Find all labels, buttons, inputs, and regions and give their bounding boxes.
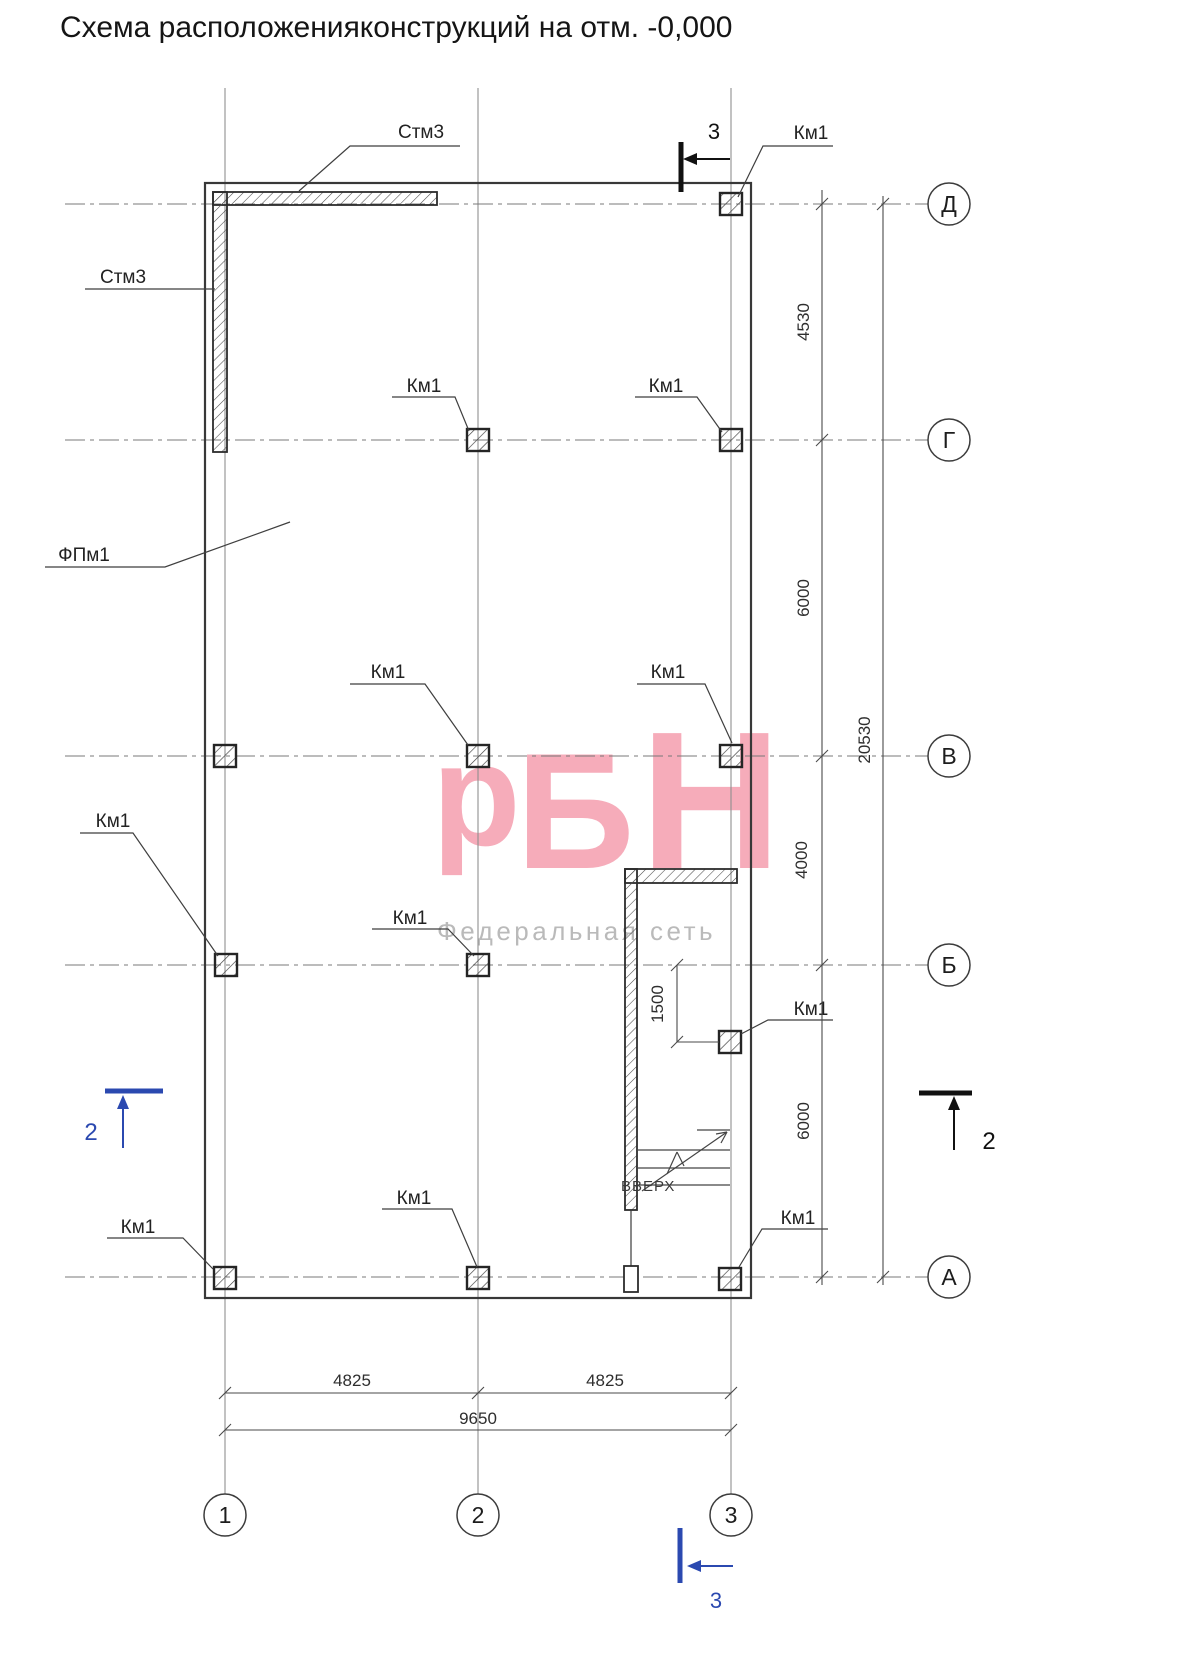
tag-km1-A3: Км1	[781, 1208, 816, 1229]
column-km1-V1	[214, 745, 236, 767]
section-marker-3-bottom: 3	[680, 1528, 733, 1613]
leader-km1-A2	[382, 1209, 477, 1267]
watermark-logo-letter: Б	[516, 719, 635, 903]
column-km1-B1	[215, 954, 237, 976]
axis-label-2: 2	[472, 1502, 485, 1528]
watermark-logo-letter: р	[432, 714, 521, 876]
tag-km1-B2: Км1	[393, 908, 428, 929]
tag-km1-B1: Км1	[96, 811, 131, 832]
column-km1-A1	[214, 1267, 236, 1289]
column-km1-stair	[719, 1031, 741, 1053]
axis-label-3: 3	[725, 1502, 738, 1528]
leader-km1-D3	[738, 146, 833, 197]
section-label-3-top: 3	[708, 119, 720, 144]
column-axis-bubbles: 1 2 3	[204, 1494, 752, 1536]
dim-20530: 20530	[855, 716, 874, 763]
tag-km1-stair: Км1	[794, 999, 829, 1020]
stairwell-wall-top	[625, 869, 737, 883]
section-marker-3-top: 3	[681, 119, 730, 192]
watermark: р Б Н Федеральная сеть	[432, 691, 782, 946]
stair-dimension	[671, 959, 719, 1048]
dim-6000a: 6000	[794, 579, 813, 617]
column-km1-A3	[719, 1268, 741, 1290]
tag-km1-V3: Км1	[651, 662, 686, 683]
stair-up-label: ВВЕРХ	[621, 1178, 675, 1195]
tag-km1-A1: Км1	[121, 1217, 156, 1238]
dim-1500: 1500	[648, 985, 667, 1023]
row-axis-bubbles: Д Г В Б А	[928, 183, 970, 1298]
section-arrow	[948, 1096, 960, 1110]
leader-km1-B1	[80, 833, 218, 956]
dim-4825-right: 4825	[586, 1371, 624, 1390]
section-arrow	[687, 1560, 701, 1572]
axis-label-A: А	[941, 1264, 957, 1290]
axis-label-G: Г	[943, 427, 956, 453]
column-km1-G3	[720, 429, 742, 451]
page-title: Схема расположенияконструкций на отм. -0…	[60, 11, 732, 44]
tag-km1-D3: Км1	[794, 123, 829, 144]
leader-km1-G3	[635, 397, 722, 432]
tag-fpm1: ФПм1	[58, 545, 110, 566]
drawing-sheet: р Б Н Федеральная сеть Схема расположени…	[0, 0, 1200, 1654]
leader-km1-A3	[739, 1229, 828, 1267]
section-label-3-bottom: 3	[710, 1588, 722, 1613]
tag-km1-V2: Км1	[371, 662, 406, 683]
dim-9650: 9650	[459, 1409, 497, 1428]
dim-4530: 4530	[794, 303, 813, 341]
dim-4825-left: 4825	[333, 1371, 371, 1390]
axis-label-V: В	[941, 743, 956, 769]
tag-stm3-left: Стм3	[100, 267, 146, 288]
leader-km1-A1	[107, 1238, 213, 1269]
stairwell-wall-left	[625, 869, 637, 1210]
wall-left-stm3	[213, 192, 227, 452]
dim-6000b: 6000	[794, 1102, 813, 1140]
axis-label-1: 1	[219, 1502, 232, 1528]
leader-km1-stair	[741, 1020, 833, 1034]
section-label-2-right: 2	[982, 1128, 995, 1155]
leader-stm3-top	[299, 146, 460, 191]
column-km1-A2	[467, 1267, 489, 1289]
leader-km1-G2	[392, 397, 469, 431]
wall-top-stm3	[213, 192, 437, 205]
column-km1-V3	[720, 745, 742, 767]
dim-4000: 4000	[792, 841, 811, 879]
section-arrow	[117, 1095, 129, 1109]
axis-label-B: Б	[941, 952, 956, 978]
tag-km1-A2: Км1	[397, 1188, 432, 1209]
tag-km1-G3: Км1	[649, 376, 684, 397]
section-marker-2-right: 2	[919, 1093, 996, 1155]
section-arrow	[683, 153, 697, 165]
column-km1-B2	[467, 954, 489, 976]
tag-stm3-top: Стм3	[398, 122, 444, 143]
section-marker-2-left: 2	[84, 1091, 163, 1148]
column-km1-G2	[467, 429, 489, 451]
column-km1-V2	[467, 745, 489, 767]
stairwell-wall-pier	[624, 1266, 638, 1292]
structural-plan-drawing: р Б Н Федеральная сеть Схема расположени…	[0, 0, 1200, 1654]
watermark-subtitle: Федеральная сеть	[437, 916, 716, 946]
axis-label-D: Д	[941, 191, 957, 217]
section-label-2-left: 2	[84, 1119, 97, 1146]
tag-km1-G2: Км1	[407, 376, 442, 397]
vertical-dimension-lines	[816, 190, 889, 1285]
